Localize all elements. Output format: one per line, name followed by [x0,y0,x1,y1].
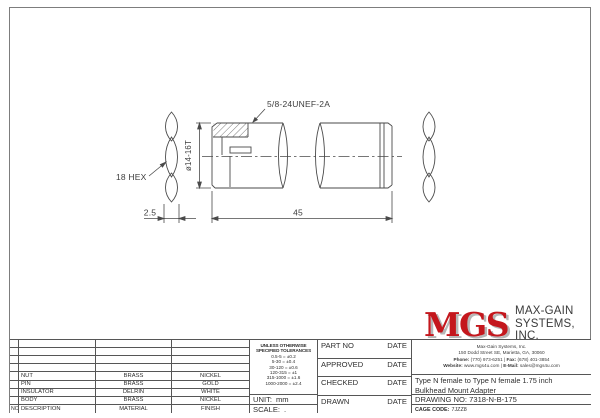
parts-cell [10,340,19,348]
fax-value: (678) 401-3854 [516,357,549,362]
signoff-date-label: DATE [387,360,407,369]
signoff-row-checked: CHECKED DATE [318,377,411,396]
adapter-body-view [202,123,402,188]
website-label: Website: [443,363,462,368]
company-name: MAX-GAIN SYSTEMS, INC. [515,305,600,343]
scale-row: SCALE: . [250,405,317,414]
parts-header-description: DESCRIPTION [19,405,96,413]
logo-mgs-text: MGS [424,308,508,341]
length-dimension: 45 [293,208,303,218]
cage-code-label: CAGE CODE: [415,407,449,413]
email-value: sales@mgs4u.com [519,363,560,368]
part-material: DELRIN [96,389,172,397]
company-name-line1: MAX-GAIN [515,305,600,318]
parts-cell [10,372,19,380]
signoff-date-label: DATE [387,341,407,350]
scale-label: SCALE: [253,405,280,414]
parts-cell [10,389,19,397]
company-web-line: Website: www.mgs4u.com | E-Mail: sales@m… [412,363,591,369]
parts-cell [10,397,19,405]
unit-label: UNIT: [253,395,272,404]
phone-label: Phone: [453,357,469,362]
drawing-number: DRAWING NO: 7318-N-B-175 [412,395,591,405]
part-material: BRASS [96,397,172,405]
right-hex-side-view [423,112,435,202]
signoff-row-approved: APPROVED DATE [318,359,411,378]
hex-label: 18 HEX [116,172,147,182]
parts-cell [172,356,249,364]
parts-cell [96,340,172,348]
website-value: www.mgs4u.com | [463,363,504,368]
part-finish: GOLD [172,381,249,389]
part-finish: NICKEL [172,372,249,380]
drawing-title: Type N female to Type N female 1.75 inch… [412,375,591,395]
fax-label: Fax: [507,357,517,362]
unit-value: mm [276,395,289,404]
thread-callout: 5/8-24UNEF-2A [267,99,330,109]
signoff-label: APPROVED [321,360,363,369]
thread-callout-leader [253,109,265,122]
parts-cell [96,364,172,372]
signoff-label: DRAWN [321,397,349,406]
scale-value: . [284,405,286,414]
part-finish: WHITE [172,389,249,397]
tolerance-row: 1000-2000 = ±2.4 [250,381,317,386]
signoff-label: CHECKED [321,378,358,387]
parts-cell [10,364,19,372]
diameter-dimension-group [196,123,211,188]
signoff-column: PART NO DATE APPROVED DATE CHECKED DATE … [317,339,411,413]
parts-cell [96,356,172,364]
drawing-title-line2: Bulkhead Mount Adapter [415,386,591,396]
title-info-column: Max-Gain Systems, Inc. 150 Dodd Street S… [411,339,591,413]
signoff-label: PART NO [321,341,354,350]
part-material: BRASS [96,381,172,389]
diameter-dimension: ø14-16T [184,140,193,171]
email-label: E-Mail: [503,363,518,368]
parts-cell [10,348,19,356]
thickness-dimension: 2.5 [144,208,156,218]
signoff-date-label: DATE [387,378,407,387]
unit-row: UNIT: mm [250,395,317,405]
parts-cell [19,348,96,356]
part-description: INSULATOR [19,389,96,397]
tolerance-column: UNLESS OTHERWISE SPECIFIED TOLERANCES 0.… [249,339,317,413]
parts-cell [172,364,249,372]
left-hex-side-view [166,112,178,202]
parts-cell [19,340,96,348]
center-pin [230,147,251,153]
signoff-row-drawn: DRAWN DATE [318,396,411,415]
part-description: BODY [19,397,96,405]
signoff-row-partno: PART NO DATE [318,340,411,359]
parts-cell [19,364,96,372]
parts-cell [10,381,19,389]
cage-code-value: 7JZZ8 [451,407,466,413]
cage-code: CAGE CODE: 7JZZ8 [412,405,591,414]
part-material: BRASS [96,372,172,380]
part-description: PIN [19,381,96,389]
part-description: NUT [19,372,96,380]
parts-table: NUT BRASS NICKEL PIN BRASS GOLD INSULATO… [10,339,249,413]
tolerance-block: UNLESS OTHERWISE SPECIFIED TOLERANCES 0.… [250,340,317,395]
parts-header-no: NO. [10,405,19,413]
drawing-sheet: ø14-16T 45 2.5 18 HEX 5/8-24UNEF-2A [0,0,600,418]
parts-header-material: MATERIAL [96,405,172,413]
parts-cell [96,348,172,356]
phone-value: (770) 973-6251 | [469,357,506,362]
parts-cell [172,340,249,348]
parts-cell [10,356,19,364]
parts-header-finish: FINISH [172,405,249,413]
company-address-block: Max-Gain Systems, Inc. 150 Dodd Street S… [412,340,591,375]
thread-hatch [214,124,249,138]
parts-cell [19,356,96,364]
adapter-drawing: ø14-16T 45 2.5 18 HEX 5/8-24UNEF-2A [0,0,600,335]
drawing-title-line1: Type N female to Type N female 1.75 inch [415,376,591,386]
signoff-date-label: DATE [387,397,407,406]
parts-cell [172,348,249,356]
company-logo: MGS MAX-GAIN SYSTEMS, INC. [424,307,600,341]
part-finish: NICKEL [172,397,249,405]
hex-label-leader [149,162,166,176]
